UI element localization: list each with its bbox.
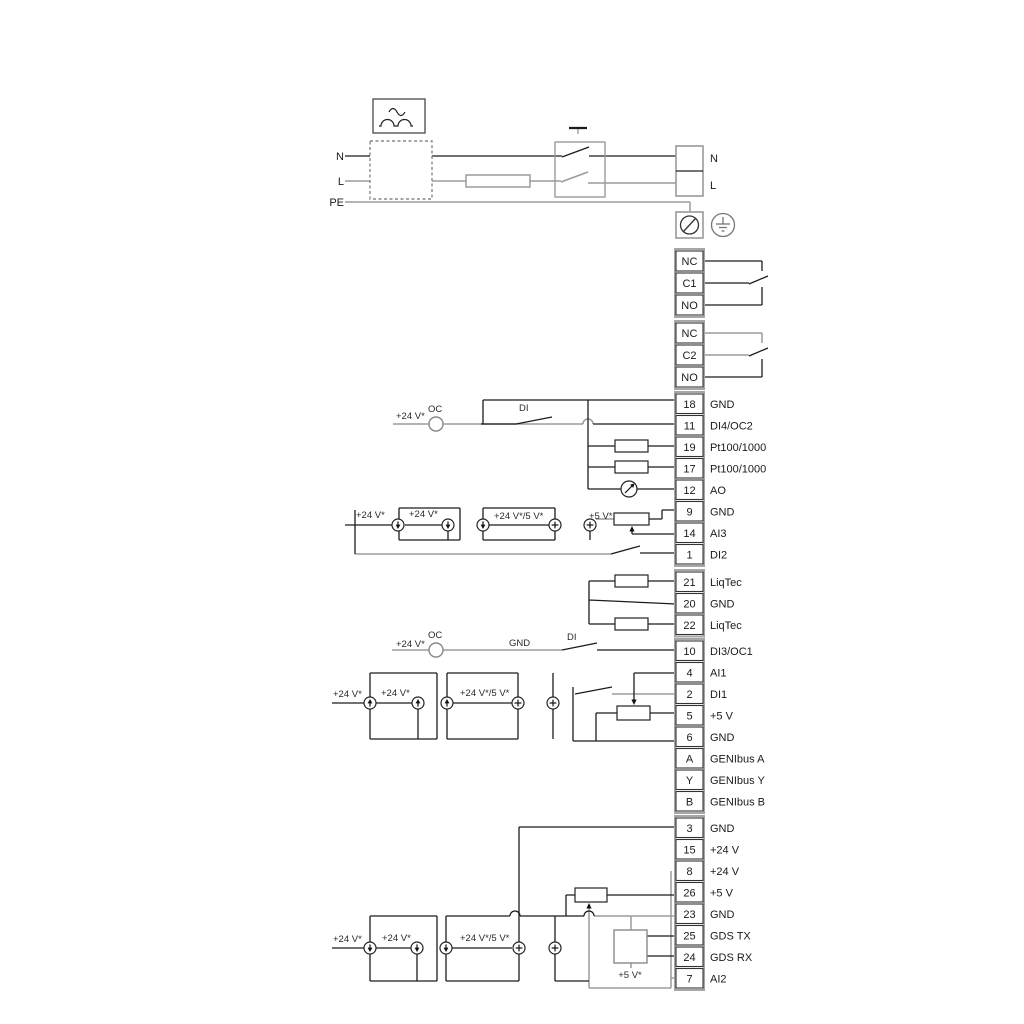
annotation-label: +24 V* bbox=[333, 689, 362, 700]
annotation-label: +24 V* bbox=[381, 688, 410, 699]
n-left-label: N bbox=[336, 151, 344, 163]
terminal-NO: NO bbox=[676, 367, 703, 387]
terminal-label: GENIbus A bbox=[710, 753, 765, 765]
io-strip-a: 18GND11DI4/OC219Pt100/100017Pt100/100012… bbox=[675, 392, 766, 566]
terminal-label: GND bbox=[710, 732, 735, 744]
annotation-label: DI bbox=[519, 403, 529, 414]
annotation-label: OC bbox=[428, 404, 442, 415]
terminal-23: 23GND bbox=[676, 904, 735, 924]
terminal-number: 3 bbox=[686, 823, 692, 835]
terminal-number: 26 bbox=[683, 887, 695, 899]
terminal-2: 2DI1 bbox=[676, 684, 727, 704]
terminal-label: AI2 bbox=[710, 973, 727, 985]
terminal-number: B bbox=[686, 796, 693, 808]
relay-1-block: NCC1NO bbox=[675, 249, 704, 317]
terminal-number: NC bbox=[682, 328, 698, 340]
annotation-label: +24 V* bbox=[396, 411, 425, 422]
terminal-11: 11DI4/OC2 bbox=[676, 416, 753, 436]
terminal-4: 4AI1 bbox=[676, 663, 727, 683]
potentiometer-icon bbox=[614, 513, 649, 532]
mains-terminal-block bbox=[676, 146, 703, 196]
waveform-box bbox=[373, 99, 425, 133]
terminal-19: 19Pt100/1000 bbox=[676, 437, 766, 457]
terminal-label: +5 V bbox=[710, 710, 734, 722]
terminal-A: AGENIbus A bbox=[676, 749, 765, 769]
terminal-8: 8+24 V bbox=[676, 861, 740, 881]
terminal-label: GND bbox=[710, 909, 735, 921]
terminal-NC: NC bbox=[676, 323, 703, 343]
terminal-7: 7AI2 bbox=[676, 969, 727, 989]
annotation-label: +24 V* bbox=[396, 639, 425, 650]
terminal-number: 5 bbox=[686, 710, 692, 722]
terminal-number: 1 bbox=[686, 549, 692, 561]
io-strip-b: 10DI3/OC14AI12DI15+5 V6GNDAGENIbus AYGEN… bbox=[675, 639, 765, 813]
terminal-label: DI1 bbox=[710, 689, 727, 701]
pe-screw-terminal bbox=[676, 212, 703, 238]
terminal-number: NC bbox=[682, 256, 698, 268]
annotation-label: +5 V* bbox=[589, 511, 613, 522]
terminal-label: AI1 bbox=[710, 667, 727, 679]
terminal-number: Y bbox=[686, 775, 694, 787]
gds-sensor-box bbox=[614, 930, 647, 963]
terminal-20: 20GND bbox=[676, 594, 735, 614]
terminal-label: AI3 bbox=[710, 528, 727, 540]
n-right-label: N bbox=[710, 153, 718, 165]
terminal-number: 15 bbox=[683, 844, 695, 856]
liqtec-strip: 21LiqTec20GND22LiqTec bbox=[675, 570, 742, 637]
terminal-label: GDS TX bbox=[710, 930, 751, 942]
annotation-label: +24 V* bbox=[356, 510, 385, 521]
terminal-strips: NCC1NONCC2NO18GND11DI4/OC219Pt100/100017… bbox=[675, 249, 766, 990]
terminal-label: DI3/OC1 bbox=[710, 646, 753, 658]
terminal-number: C1 bbox=[682, 278, 696, 290]
terminal-9: 9GND bbox=[676, 502, 735, 522]
terminal-C2: C2 bbox=[676, 345, 703, 365]
annotation-label: +24 V*/5 V* bbox=[460, 933, 510, 944]
terminal-number: 12 bbox=[683, 485, 695, 497]
terminal-number: 4 bbox=[686, 667, 692, 679]
annotation-label: +24 V* bbox=[333, 934, 362, 945]
fuse-icon bbox=[466, 175, 530, 187]
terminal-15: 15+24 V bbox=[676, 840, 740, 860]
terminal-17: 17Pt100/1000 bbox=[676, 459, 766, 479]
terminal-label: GND bbox=[710, 399, 735, 411]
terminal-number: 11 bbox=[684, 420, 695, 432]
terminal-21: 21LiqTec bbox=[676, 572, 742, 592]
annotation-label: +24 V* bbox=[382, 933, 411, 944]
terminal-label: LiqTec bbox=[710, 620, 742, 632]
terminal-label: DI4/OC2 bbox=[710, 420, 753, 432]
analog-output-meter-icon bbox=[621, 481, 637, 497]
earth-ground-icon bbox=[712, 214, 735, 237]
open-collector-icon bbox=[429, 417, 443, 431]
terminal-12: 12AO bbox=[676, 480, 726, 500]
terminal-10: 10DI3/OC1 bbox=[676, 641, 753, 661]
terminal-number: 2 bbox=[686, 689, 692, 701]
mains-section bbox=[370, 99, 735, 238]
terminal-label: GDS RX bbox=[710, 952, 753, 964]
terminal-label: LiqTec bbox=[710, 577, 742, 589]
terminal-number: 14 bbox=[683, 528, 695, 540]
terminal-C1: C1 bbox=[676, 273, 703, 293]
terminal-3: 3GND bbox=[676, 818, 735, 838]
pe-label: PE bbox=[329, 197, 344, 209]
terminal-Y: YGENIbus Y bbox=[676, 770, 765, 790]
terminal-25: 25GDS TX bbox=[676, 926, 751, 946]
terminal-14: 14AI3 bbox=[676, 523, 727, 543]
relay-2-block: NCC2NO bbox=[675, 321, 704, 389]
terminal-NO: NO bbox=[676, 295, 703, 315]
terminal-number: NO bbox=[681, 300, 698, 312]
terminal-number: 7 bbox=[686, 973, 692, 985]
terminal-label: +24 V bbox=[710, 866, 740, 878]
terminal-label: +5 V bbox=[710, 887, 734, 899]
terminal-number: 10 bbox=[683, 646, 695, 658]
open-collector-icon bbox=[429, 643, 443, 657]
annotation-label: +24 V* bbox=[409, 509, 438, 520]
terminal-number: 6 bbox=[686, 732, 692, 744]
terminal-number: 9 bbox=[686, 506, 692, 518]
terminal-18: 18GND bbox=[676, 394, 735, 414]
terminal-number: 17 bbox=[683, 463, 695, 475]
terminal-label: GENIbus B bbox=[710, 796, 765, 808]
terminal-label: Pt100/1000 bbox=[710, 463, 766, 475]
annotation-label: +24 V*/5 V* bbox=[494, 511, 544, 522]
terminal-label: Pt100/1000 bbox=[710, 442, 766, 454]
terminal-6: 6GND bbox=[676, 727, 735, 747]
terminal-label: GND bbox=[710, 506, 735, 518]
terminal-label: DI2 bbox=[710, 549, 727, 561]
annotation-label: DI bbox=[567, 632, 577, 643]
terminal-NC: NC bbox=[676, 251, 703, 271]
terminal-label: AO bbox=[710, 485, 726, 497]
terminal-22: 22LiqTec bbox=[676, 615, 742, 635]
terminal-label: GENIbus Y bbox=[710, 775, 765, 787]
annotation-label: OC bbox=[428, 630, 442, 641]
annotation-label: GND bbox=[509, 638, 530, 649]
potentiometer-icon bbox=[575, 888, 607, 909]
terminal-B: BGENIbus B bbox=[676, 792, 765, 812]
io-strip-c: 3GND15+24 V8+24 V26+5 V23GND25GDS TX24GD… bbox=[675, 816, 753, 990]
terminal-number: 19 bbox=[683, 442, 695, 454]
terminal-number: 22 bbox=[683, 620, 695, 632]
terminal-number: 21 bbox=[683, 577, 695, 589]
terminal-number: 20 bbox=[683, 598, 695, 610]
annotation-label: +24 V*/5 V* bbox=[460, 688, 510, 699]
potentiometer-icon bbox=[617, 700, 650, 721]
terminal-number: 25 bbox=[683, 930, 695, 942]
terminal-number: 23 bbox=[683, 909, 695, 921]
wiring-diagram: NCC1NONCC2NO18GND11DI4/OC219Pt100/100017… bbox=[0, 0, 1024, 1024]
terminal-label: +24 V bbox=[710, 844, 740, 856]
terminal-number: NO bbox=[681, 372, 698, 384]
l-right-label: L bbox=[710, 180, 716, 192]
schematic-canvas: NCC1NONCC2NO18GND11DI4/OC219Pt100/100017… bbox=[0, 0, 1024, 1024]
text-labels: N L PE N L +24 V* OC DI +24 V* +24 V* +2… bbox=[329, 151, 718, 981]
terminal-24: 24GDS RX bbox=[676, 947, 753, 967]
terminal-number: 18 bbox=[683, 399, 695, 411]
terminal-label: GND bbox=[710, 823, 735, 835]
terminal-number: 24 bbox=[683, 952, 695, 964]
l-left-label: L bbox=[338, 176, 344, 188]
terminal-number: C2 bbox=[682, 350, 696, 362]
terminal-label: GND bbox=[710, 598, 735, 610]
terminal-1: 1DI2 bbox=[676, 545, 727, 565]
rcd-box bbox=[370, 141, 432, 199]
annotation-label: +5 V* bbox=[618, 970, 642, 981]
terminal-number: A bbox=[686, 753, 694, 765]
terminal-number: 8 bbox=[686, 866, 692, 878]
